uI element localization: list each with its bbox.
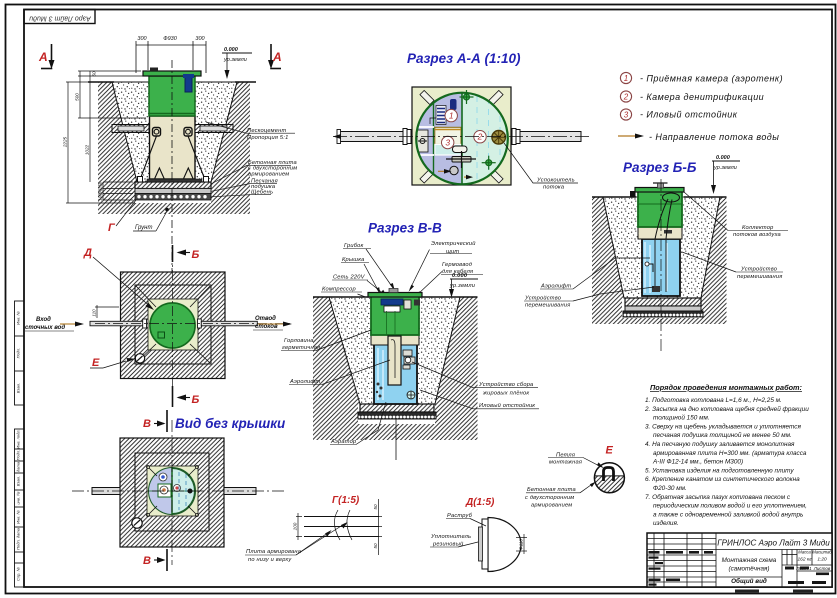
svg-text:с двухсторонним: с двухсторонним [525,495,574,501]
svg-text:Устройство: Устройство [740,266,777,273]
svg-text:Порядок проведения монтажных р: Порядок проведения монтажных работ: [650,383,803,392]
svg-text:2: 2 [623,93,629,102]
svg-text:300: 300 [195,36,205,42]
svg-text:Пропорция 5:1: Пропорция 5:1 [247,135,288,141]
svg-text:Подп.: Подп. [16,450,21,461]
svg-text:Разрез Б-Б: Разрез Б-Б [623,160,697,175]
svg-text:Грунт: Грунт [135,225,152,231]
svg-text:Масштаб: Масштаб [812,550,832,555]
svg-text:- Направление потока воды: - Направление потока воды [649,132,779,142]
svg-text:изделия.: изделия. [653,519,679,527]
svg-text:Уплотнитель: Уплотнитель [430,534,471,540]
svg-text:потока: потока [543,185,564,191]
svg-text:толщиной 150 мм.: толщиной 150 мм. [653,414,710,422]
svg-text:В: В [143,555,151,567]
svg-text:Инв. №: Инв. № [16,509,21,523]
svg-text:Вход: Вход [36,317,51,323]
svg-text:Сеть 220V: Сеть 220V [333,275,366,281]
svg-text:1022: 1022 [85,144,90,155]
svg-text:Ф930: Ф930 [163,36,177,42]
svg-text:сточных вод: сточных вод [25,325,65,331]
svg-text:Взам.: Взам. [16,476,21,487]
svg-text:Б: Б [192,249,200,261]
svg-text:Д: Д [83,247,92,259]
svg-text:а также с одновременной заливк: а также с одновременной заливкой водой в… [653,510,803,518]
svg-text:Плита армирована: Плита армирована [246,549,301,555]
svg-text:- Иловый отстойник: - Иловый отстойник [640,110,738,120]
svg-text:1: 1 [449,111,454,121]
svg-text:А: А [38,50,48,64]
svg-text:100: 100 [293,522,298,530]
svg-text:3. Сверху на щебень укладывает: 3. Сверху на щебень укладывается и уплот… [645,422,801,430]
svg-text:Устройство сбора: Устройство сбора [478,381,533,388]
svg-text:Общий вид: Общий вид [731,577,767,585]
svg-text:ГРИНЛОС Аэро Лайт 3 Миди: ГРИНЛОС Аэро Лайт 3 Миди [717,539,830,548]
svg-text:периодическим поливом водой и: периодическим поливом водой и его уплотн… [653,502,807,510]
svg-text:- Приёмная камера (аэротенк): - Приёмная камера (аэротенк) [640,74,783,84]
svg-text:Подп.: Подп. [16,348,21,359]
svg-text:потоков воздуха: потоков воздуха [733,232,781,238]
svg-text:Раструб: Раструб [447,513,473,519]
svg-text:110: 110 [92,309,97,317]
svg-text:Масса: Масса [798,550,811,555]
svg-text:Ф20-30 мм.: Ф20-30 мм. [653,485,687,492]
svg-text:100: 100 [98,193,103,201]
svg-text:герметичная: герметичная [282,345,320,351]
svg-text:7. Обратная засыпка пазух котл: 7. Обратная засыпка пазух котлована песк… [645,493,791,501]
svg-text:0.000: 0.000 [452,273,468,279]
svg-text:0.000: 0.000 [224,47,238,53]
svg-text:- Камера денитрификации: - Камера денитрификации [640,92,764,102]
svg-text:Коллектор: Коллектор [742,225,774,231]
svg-text:Г(1:5): Г(1:5) [332,495,360,506]
svg-text:Разрез В-В: Разрез В-В [368,221,442,236]
svg-text:Аэролифт: Аэролифт [540,284,571,290]
svg-text:2225: 2225 [63,136,68,148]
svg-text:50: 50 [373,543,378,549]
svg-text:армированием: армированием [531,503,572,509]
svg-text:перемешивания: перемешивания [737,274,782,280]
svg-text:Гермоввод: Гермоввод [442,262,472,268]
svg-text:1. Подготовка котлована L=1,6: 1. Подготовка котлована L=1,6 м., H=2,25… [645,396,782,404]
svg-text:стоков: стоков [255,324,278,330]
svg-text:Ф110: Ф110 [519,539,524,550]
svg-text:Взам.: Взам. [16,383,21,394]
svg-text:4. На песчаную подушку заливае: 4. На песчаную подушку заливается моноли… [645,440,795,448]
svg-text:Грибок: Грибок [344,243,364,249]
svg-text:дата: дата [16,461,21,472]
svg-text:Листов: Листов [813,566,831,571]
svg-text:3: 3 [624,111,629,120]
svg-text:Монтажная схема: Монтажная схема [722,557,777,564]
svg-text:150: 150 [98,181,103,189]
svg-text:300: 300 [137,36,147,42]
svg-text:500: 500 [75,93,80,101]
svg-text:А: А [272,50,282,64]
svg-text:6. Крепление канатом из синтет: 6. Крепление канатом из синтетического в… [645,476,800,483]
svg-text:по низу и верху: по низу и верху [248,557,292,563]
svg-text:162 кг: 162 кг [798,557,813,563]
svg-text:перемешивания: перемешивания [525,303,570,309]
svg-text:Компрессор: Компрессор [322,287,356,293]
svg-text:Горловина: Горловина [284,338,314,344]
svg-text:Разрез А-А (1:10): Разрез А-А (1:10) [407,51,521,66]
svg-text:Бетонная плита: Бетонная плита [527,487,576,493]
svg-text:3: 3 [445,138,450,148]
svg-text:Аэролифт: Аэролифт [289,379,320,385]
svg-text:ур.земли: ур.земли [223,57,247,63]
svg-text:Инв. №: Инв. № [16,310,21,324]
svg-text:Крышка: Крышка [342,257,364,263]
svg-text:песчаная подушка толщиной не м: песчаная подушка толщиной не менее 50 мм… [653,431,792,439]
svg-text:(самотёчная): (самотёчная) [728,566,769,573]
svg-text:0.000: 0.000 [716,155,730,161]
svg-text:Вид без крышки: Вид без крышки [175,416,286,431]
svg-text:монтажная: монтажная [549,460,582,466]
svg-text:Аэратор: Аэратор [330,439,356,445]
svg-text:Устройство: Устройство [524,295,561,302]
svg-text:щит: щит [446,249,459,255]
svg-text:Е: Е [92,357,100,369]
svg-text:Иловый отстойник: Иловый отстойник [479,402,535,409]
svg-text:Успокоитель: Успокоитель [536,178,575,184]
svg-text:50: 50 [373,504,378,510]
svg-text:Б: Б [192,394,200,406]
svg-text:5. Установка изделия на подгот: 5. Установка изделия на подготовленную п… [645,466,794,474]
svg-text:Отвод: Отвод [255,316,276,322]
svg-text:армированием: армированием [248,171,289,177]
svg-text:Е: Е [606,445,614,457]
svg-text:50: 50 [92,71,97,77]
svg-text:В: В [143,418,151,430]
svg-text:Подп. дата: Подп. дата [16,527,21,549]
svg-text:ур.земли: ур.земли [713,165,737,171]
svg-text:1:20: 1:20 [817,557,827,563]
svg-text:армированная плита Н=300 мм. (: армированная плита Н=300 мм. (арматура к… [653,450,807,457]
svg-text:2. Засыпка на дно котлована ще: 2. Засыпка на дно котлована щебня средне… [644,405,809,413]
svg-text:А-III Ф12-14 мм., бетон М300): А-III Ф12-14 мм., бетон М300) [652,458,743,466]
svg-text:Инв. подл.: Инв. подл. [16,429,21,448]
svg-text:Аэро Лайт 3 Миди: Аэро Лайт 3 Миди [29,15,92,23]
svg-text:ур.земли: ур.земли [449,283,476,289]
svg-text:Спр. №: Спр. № [16,566,21,581]
svg-text:1: 1 [624,74,628,83]
svg-text:инв. №: инв. № [16,491,21,505]
svg-text:Д(1:5): Д(1:5) [465,497,495,508]
svg-text:Электрический: Электрический [431,240,476,247]
svg-text:жировых плёнок: жировых плёнок [482,391,529,397]
